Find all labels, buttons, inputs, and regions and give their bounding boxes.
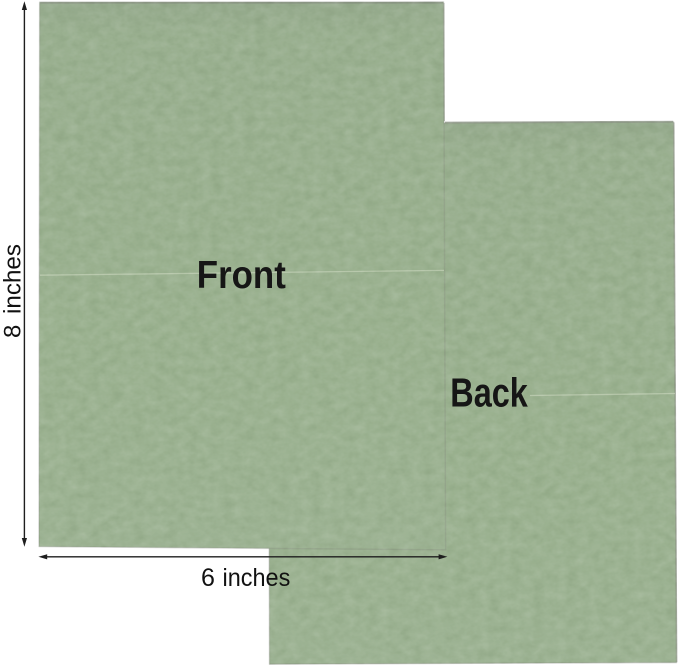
svg-text:Front: Front bbox=[197, 254, 286, 297]
svg-text:6inches: 6inches bbox=[201, 564, 290, 592]
svg-text:Back: Back bbox=[450, 370, 528, 416]
